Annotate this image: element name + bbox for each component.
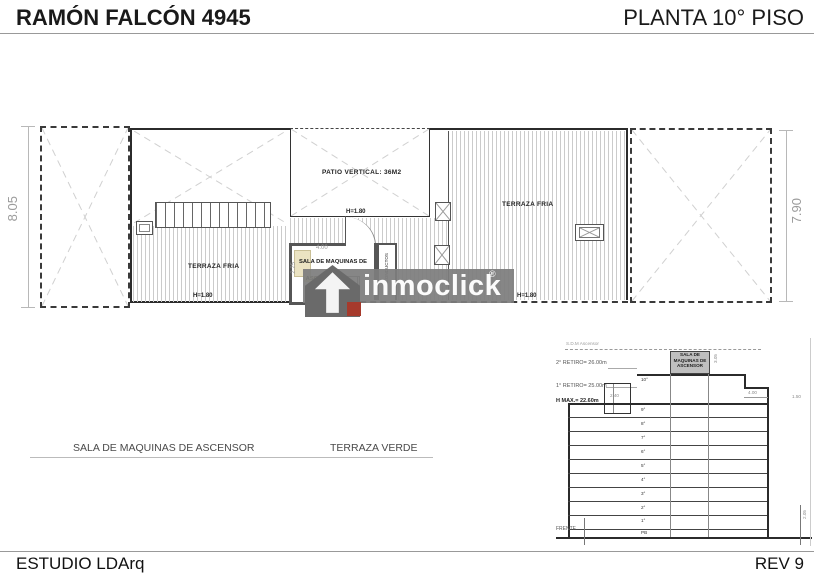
terraza-left-label: TERRAZA FRIA bbox=[188, 263, 239, 270]
terraza-left-height-note: H=1.80 bbox=[193, 293, 213, 300]
skylight-detail bbox=[575, 224, 604, 241]
frente-label: FRENTE bbox=[556, 527, 576, 533]
dim-bulkhead: 2.40 bbox=[610, 393, 619, 398]
terraza-right-label: TERRAZA FRIA bbox=[502, 201, 553, 208]
patio-height-note: H=1.80 bbox=[346, 209, 366, 216]
registered-mark: ® bbox=[489, 270, 496, 280]
right-wall bbox=[767, 403, 769, 538]
cross-lines bbox=[42, 128, 128, 306]
footer-rule bbox=[0, 551, 814, 552]
dim-step-line bbox=[744, 397, 768, 398]
watermark-brand: inmoclick bbox=[363, 270, 501, 303]
lot-area-left bbox=[40, 126, 130, 308]
floor-label: 4° bbox=[641, 477, 645, 482]
slab bbox=[568, 445, 767, 446]
dim-tick bbox=[21, 126, 35, 127]
step-v2 bbox=[767, 387, 769, 404]
bulkhead-line bbox=[613, 384, 614, 413]
door-opening bbox=[346, 242, 374, 247]
machine-room-label-line1: SALA DE MAQUINAS DE bbox=[292, 259, 374, 265]
slab bbox=[568, 501, 767, 502]
slab bbox=[568, 431, 767, 432]
floor-label: 6° bbox=[641, 449, 645, 454]
sdm-level-line bbox=[565, 349, 761, 350]
floor-label: 1° bbox=[641, 518, 645, 523]
left-wall bbox=[568, 403, 570, 538]
floor-label: PB bbox=[641, 530, 647, 535]
floor-label: 3° bbox=[641, 491, 645, 496]
dim-tick bbox=[21, 307, 35, 308]
machine-box-line3: ASCENSOR bbox=[671, 363, 709, 369]
section-machine-box: SALA DE MAQUINAS DE ASCENSOR bbox=[670, 351, 710, 374]
floor-label: 2° bbox=[641, 505, 645, 510]
slab bbox=[568, 515, 767, 516]
arrow-icon bbox=[315, 272, 350, 313]
stairs bbox=[155, 202, 271, 228]
retiro1-label: 1° RETIRO= 25.00m bbox=[556, 383, 607, 389]
dim-line-right bbox=[786, 130, 787, 302]
step-h bbox=[744, 387, 768, 389]
cross-lines bbox=[632, 130, 770, 301]
plan-title: PLANTA 10° PISO bbox=[623, 6, 804, 30]
roof-slab bbox=[637, 374, 745, 376]
floor-label: 10° bbox=[641, 377, 648, 382]
vent-box-1 bbox=[435, 202, 451, 221]
slab bbox=[568, 417, 767, 418]
lot-area-right bbox=[630, 128, 772, 303]
rear-lot-line bbox=[800, 505, 801, 545]
terraza-right-height-note: H=1.80 bbox=[517, 293, 537, 300]
sheet-title: RAMÓN FALCÓN 4945 bbox=[16, 6, 251, 30]
section-sdm-level-label: S.D.M Ascensor bbox=[566, 341, 599, 346]
dim-ground: 2.05 bbox=[802, 510, 807, 519]
machine-room-width-dim: 4.00 bbox=[316, 245, 328, 252]
machine-room-height-dim: 2.25 bbox=[291, 262, 298, 274]
retiro2-line bbox=[608, 368, 637, 369]
slab bbox=[568, 487, 767, 488]
body-top-slab bbox=[568, 403, 768, 405]
header-rule bbox=[0, 33, 814, 34]
shaft-column-1 bbox=[670, 374, 671, 538]
shaft-column-2 bbox=[708, 374, 709, 538]
drawing-sheet: RAMÓN FALCÓN 4945 PLANTA 10° PISO 8.05 bbox=[0, 0, 814, 576]
logo-red-square bbox=[347, 302, 361, 316]
dim-7-90: 7.90 bbox=[790, 198, 804, 223]
ground-line bbox=[556, 537, 812, 539]
dim-8-05: 8.05 bbox=[6, 196, 20, 221]
wall-vent bbox=[136, 221, 153, 235]
dim-tick bbox=[779, 301, 793, 302]
wall-vent-inner bbox=[139, 224, 150, 232]
floor-label: 7° bbox=[641, 435, 645, 440]
dim-parapet: 1.50 bbox=[792, 394, 801, 399]
patio-label: PATIO VERTICAL: 36M2 bbox=[322, 169, 401, 176]
dim-tick bbox=[779, 130, 793, 131]
stair-bulkhead bbox=[604, 383, 631, 414]
step-v1 bbox=[744, 374, 746, 388]
margin-line bbox=[810, 338, 811, 546]
dim-step: 4.00 bbox=[748, 390, 757, 395]
vent-box-2 bbox=[434, 245, 450, 265]
dim-box-height: 3.05 bbox=[713, 354, 718, 363]
floor-label: 8° bbox=[641, 421, 645, 426]
legend-rule bbox=[30, 457, 433, 458]
floor-label: 5° bbox=[641, 463, 645, 468]
dim-line-left bbox=[28, 126, 29, 308]
retiro2-label: 2° RETIRO= 26.00m bbox=[556, 360, 607, 366]
revision-label: REV 9 bbox=[755, 555, 804, 574]
legend-green-terrace: TERRAZA VERDE bbox=[330, 443, 418, 455]
floor-label: 9° bbox=[641, 407, 645, 412]
front-lot-line bbox=[584, 518, 585, 545]
slab bbox=[568, 529, 767, 530]
studio-name: ESTUDIO LDArq bbox=[16, 555, 144, 574]
legend-machine-room: SALA DE MAQUINAS DE ASCENSOR bbox=[73, 443, 254, 455]
slab bbox=[568, 473, 767, 474]
slab bbox=[568, 459, 767, 460]
